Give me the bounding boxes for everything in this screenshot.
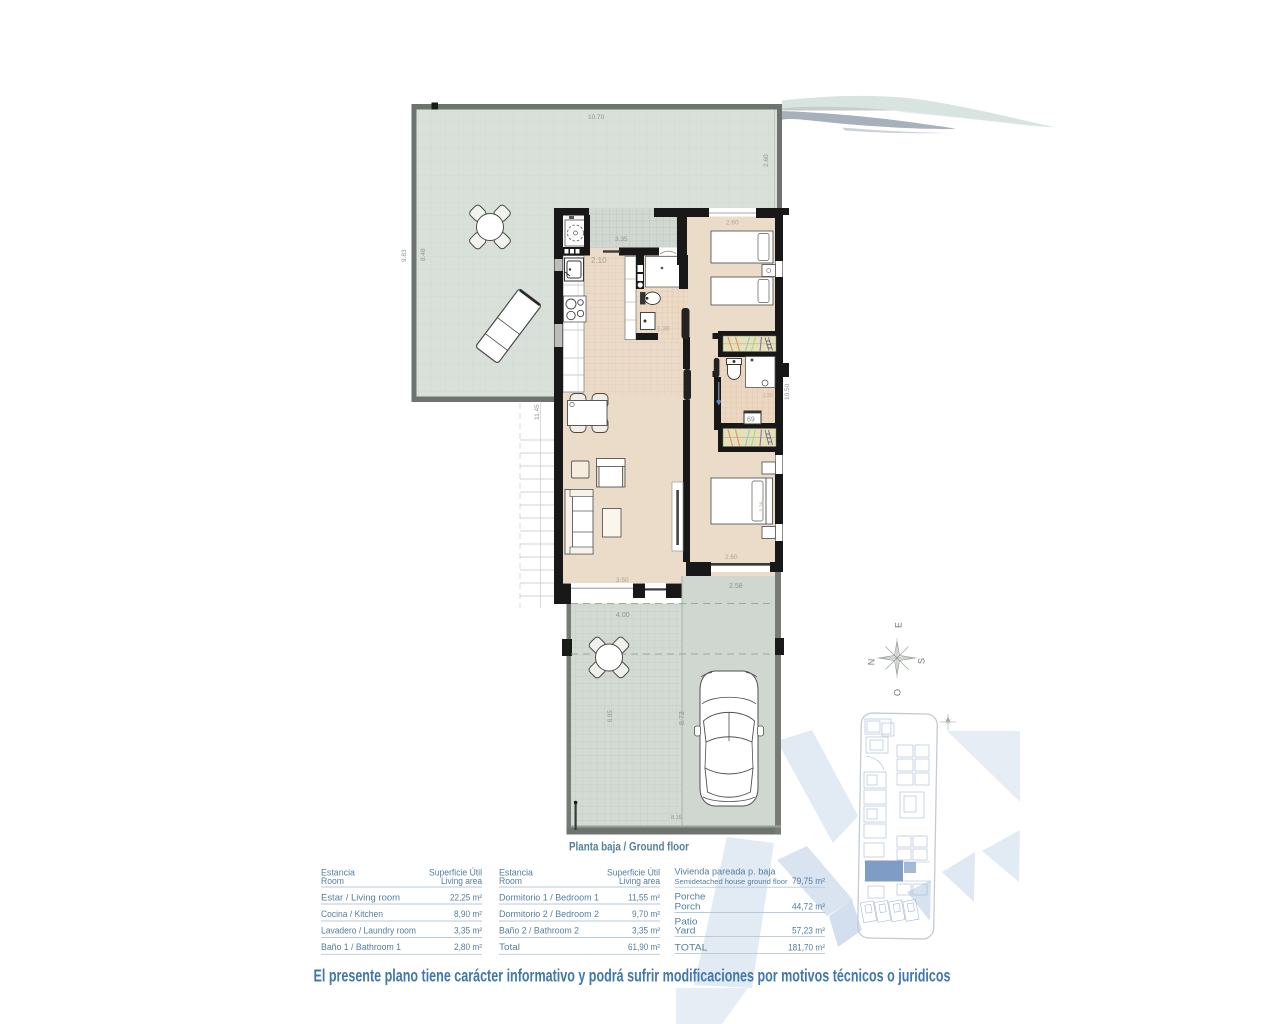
svg-text:3,35 m²: 3,35 m² (632, 926, 660, 936)
svg-text:Dormitorio 1 / Bedroom 1: Dormitorio 1 / Bedroom 1 (499, 893, 599, 903)
svg-text:61,90 m²: 61,90 m² (628, 942, 660, 952)
svg-text:11.45: 11.45 (534, 404, 541, 420)
svg-text:Semidetached house ground floo: Semidetached house ground floor (675, 877, 789, 886)
svg-text:57,23 m²: 57,23 m² (792, 926, 825, 936)
svg-text:Porch: Porch (675, 902, 701, 912)
svg-text:N: N (867, 659, 877, 666)
svg-text:Planta baja / Ground floor: Planta baja / Ground floor (569, 840, 689, 854)
svg-text:10.70: 10.70 (588, 114, 605, 121)
svg-text:8,90 m²: 8,90 m² (454, 909, 482, 919)
svg-text:TOTAL: TOTAL (675, 943, 708, 953)
svg-text:1.30: 1.30 (657, 326, 670, 333)
svg-text:3.50: 3.50 (616, 577, 629, 584)
svg-text:4.00: 4.00 (616, 612, 630, 619)
svg-text:Room: Room (499, 876, 522, 886)
svg-text:O: O (893, 689, 903, 696)
svg-text:8.15: 8.15 (671, 815, 682, 821)
svg-text:Dormitorio 2 / Bedroom 2: Dormitorio 2 / Bedroom 2 (499, 909, 599, 919)
svg-text:8.73: 8.73 (679, 711, 686, 725)
svg-text:Porche: Porche (675, 892, 706, 902)
svg-text:Total: Total (499, 942, 520, 952)
svg-text:Living area: Living area (619, 876, 660, 886)
svg-text:S: S (917, 658, 927, 664)
svg-text:Yard: Yard (675, 926, 696, 936)
svg-text:1.50: 1.50 (763, 393, 773, 399)
svg-text:3.26: 3.26 (760, 501, 766, 512)
svg-text:181,70 m²: 181,70 m² (788, 943, 825, 953)
svg-text:2.60: 2.60 (763, 154, 770, 167)
svg-text:Lavadero / Laundry room: Lavadero / Laundry room (321, 926, 416, 936)
svg-text:Estar / Living room: Estar / Living room (321, 893, 400, 903)
svg-text:2,80 m²: 2,80 m² (454, 942, 482, 952)
svg-text:E: E (894, 622, 904, 628)
svg-text:22,25 m²: 22,25 m² (450, 893, 482, 903)
svg-text:9.83: 9.83 (401, 249, 408, 262)
svg-text:69: 69 (747, 417, 755, 424)
svg-text:Baño 2 / Bathroom 2: Baño 2 / Bathroom 2 (499, 926, 579, 936)
svg-text:Vivienda pareada p. baja: Vivienda pareada p. baja (675, 867, 776, 877)
svg-text:9,70 m²: 9,70 m² (632, 909, 660, 919)
svg-text:Baño 1 / Bathroom 1: Baño 1 / Bathroom 1 (321, 942, 401, 952)
svg-text:79,75 m²: 79,75 m² (792, 876, 825, 886)
svg-text:44,72 m²: 44,72 m² (792, 902, 825, 912)
svg-text:10.50: 10.50 (784, 383, 791, 400)
svg-text:Cocina / Kitchen: Cocina / Kitchen (321, 909, 383, 919)
svg-text:El presente plano tiene caráct: El presente plano tiene carácter informa… (314, 966, 951, 986)
svg-text:2.60: 2.60 (725, 554, 738, 561)
svg-text:6.85: 6.85 (608, 710, 614, 722)
svg-text:Living area: Living area (441, 876, 482, 886)
svg-text:2.58: 2.58 (729, 583, 743, 590)
svg-text:2.60: 2.60 (726, 220, 739, 227)
svg-text:3,35 m²: 3,35 m² (454, 926, 482, 936)
svg-text:11,55 m²: 11,55 m² (628, 893, 660, 903)
svg-text:2.10: 2.10 (591, 256, 607, 265)
svg-text:8.48: 8.48 (420, 248, 427, 261)
svg-text:3.35: 3.35 (615, 236, 628, 243)
svg-text:Room: Room (321, 876, 344, 886)
